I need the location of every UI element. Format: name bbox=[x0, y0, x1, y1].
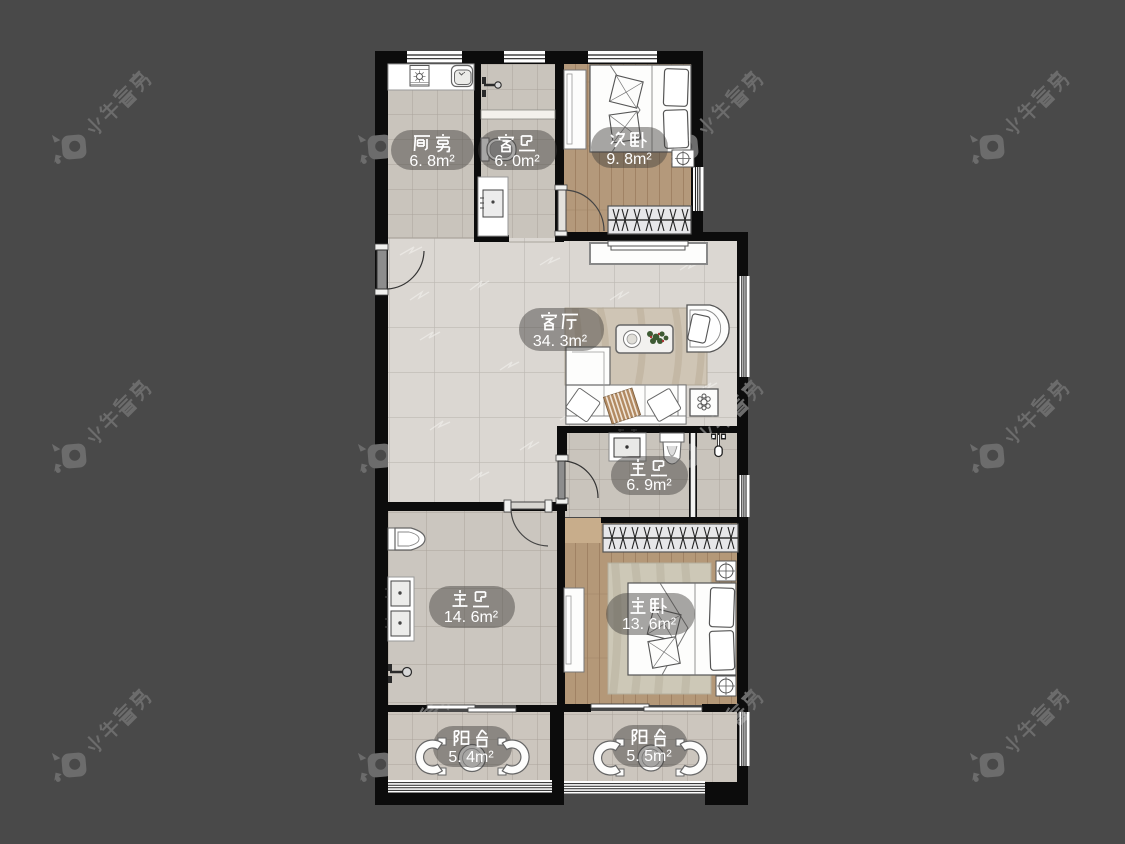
svg-text:13. 6m²: 13. 6m² bbox=[622, 616, 677, 633]
svg-text:14. 6m²: 14. 6m² bbox=[444, 609, 499, 626]
svg-text:6. 0m²: 6. 0m² bbox=[494, 153, 540, 170]
svg-text:5. 4m²: 5. 4m² bbox=[448, 749, 494, 766]
svg-text:9. 8m²: 9. 8m² bbox=[606, 151, 652, 168]
svg-text:6. 8m²: 6. 8m² bbox=[409, 153, 455, 170]
svg-text:6. 9m²: 6. 9m² bbox=[626, 477, 672, 494]
svg-text:34. 3m²: 34. 3m² bbox=[533, 333, 588, 350]
